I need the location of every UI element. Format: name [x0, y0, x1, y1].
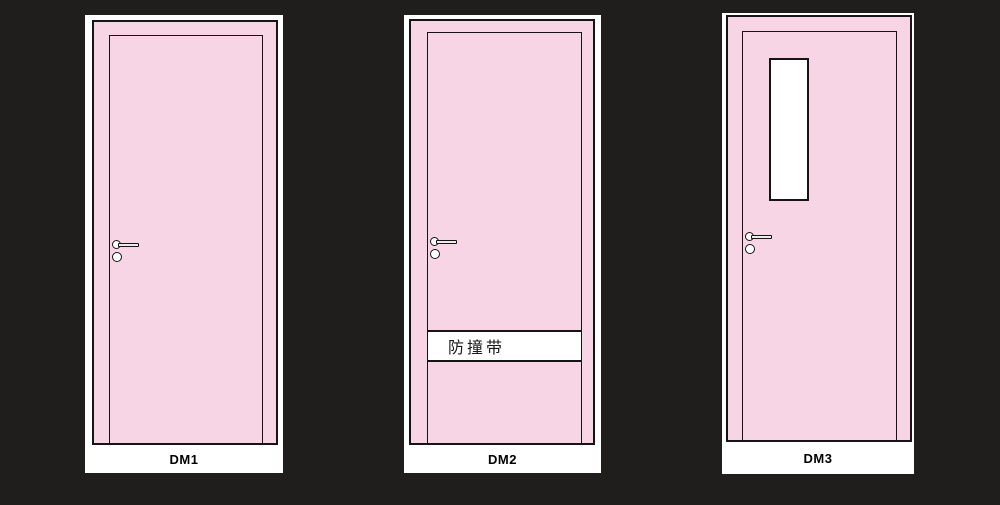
- door-label: DM1: [85, 445, 283, 473]
- door-label: DM3: [722, 442, 914, 474]
- handle-rose-icon: [112, 240, 121, 249]
- handle-rose-icon: [430, 237, 439, 246]
- door-leaf: [742, 31, 897, 440]
- handle-lever-icon: [436, 240, 457, 244]
- door-handle: [110, 36, 140, 266]
- vision-panel: [769, 58, 809, 201]
- door-frame: [92, 20, 278, 445]
- door-frame: [726, 15, 912, 442]
- door-card-dm2: 防撞带 DM2: [404, 15, 601, 473]
- handle-rose-icon: [745, 232, 754, 241]
- lock-knob-icon: [112, 252, 122, 262]
- handle-lever-icon: [118, 243, 139, 247]
- door-leaf: [109, 35, 263, 443]
- handle-lever-icon: [751, 235, 772, 239]
- door-card-dm1: DM1: [85, 15, 283, 473]
- bumper-band-label: 防撞带: [428, 334, 505, 358]
- door-frame: 防撞带: [409, 19, 595, 445]
- door-elevation-drawing: DM1 防撞带 DM2: [0, 0, 1000, 505]
- bumper-band: 防撞带: [428, 330, 581, 362]
- door-card-dm3: DM3: [722, 13, 914, 474]
- door-label: DM2: [404, 445, 601, 473]
- lock-knob-icon: [745, 244, 755, 254]
- door-leaf: 防撞带: [427, 32, 582, 443]
- lock-knob-icon: [430, 249, 440, 259]
- door-handle: [428, 33, 458, 263]
